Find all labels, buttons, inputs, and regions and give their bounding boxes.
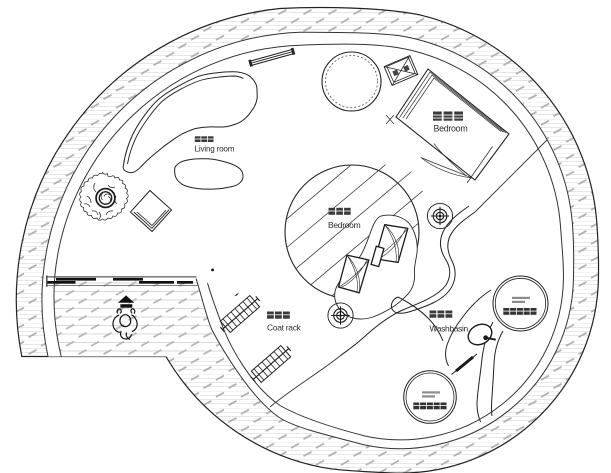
svg-text:Coat rack: Coat rack [267,323,302,333]
svg-text:Bedroom: Bedroom [328,220,361,230]
svg-text:Washbasin: Washbasin [430,324,469,334]
svg-text:Living room: Living room [195,145,235,154]
svg-text:Bedroom: Bedroom [434,124,468,134]
